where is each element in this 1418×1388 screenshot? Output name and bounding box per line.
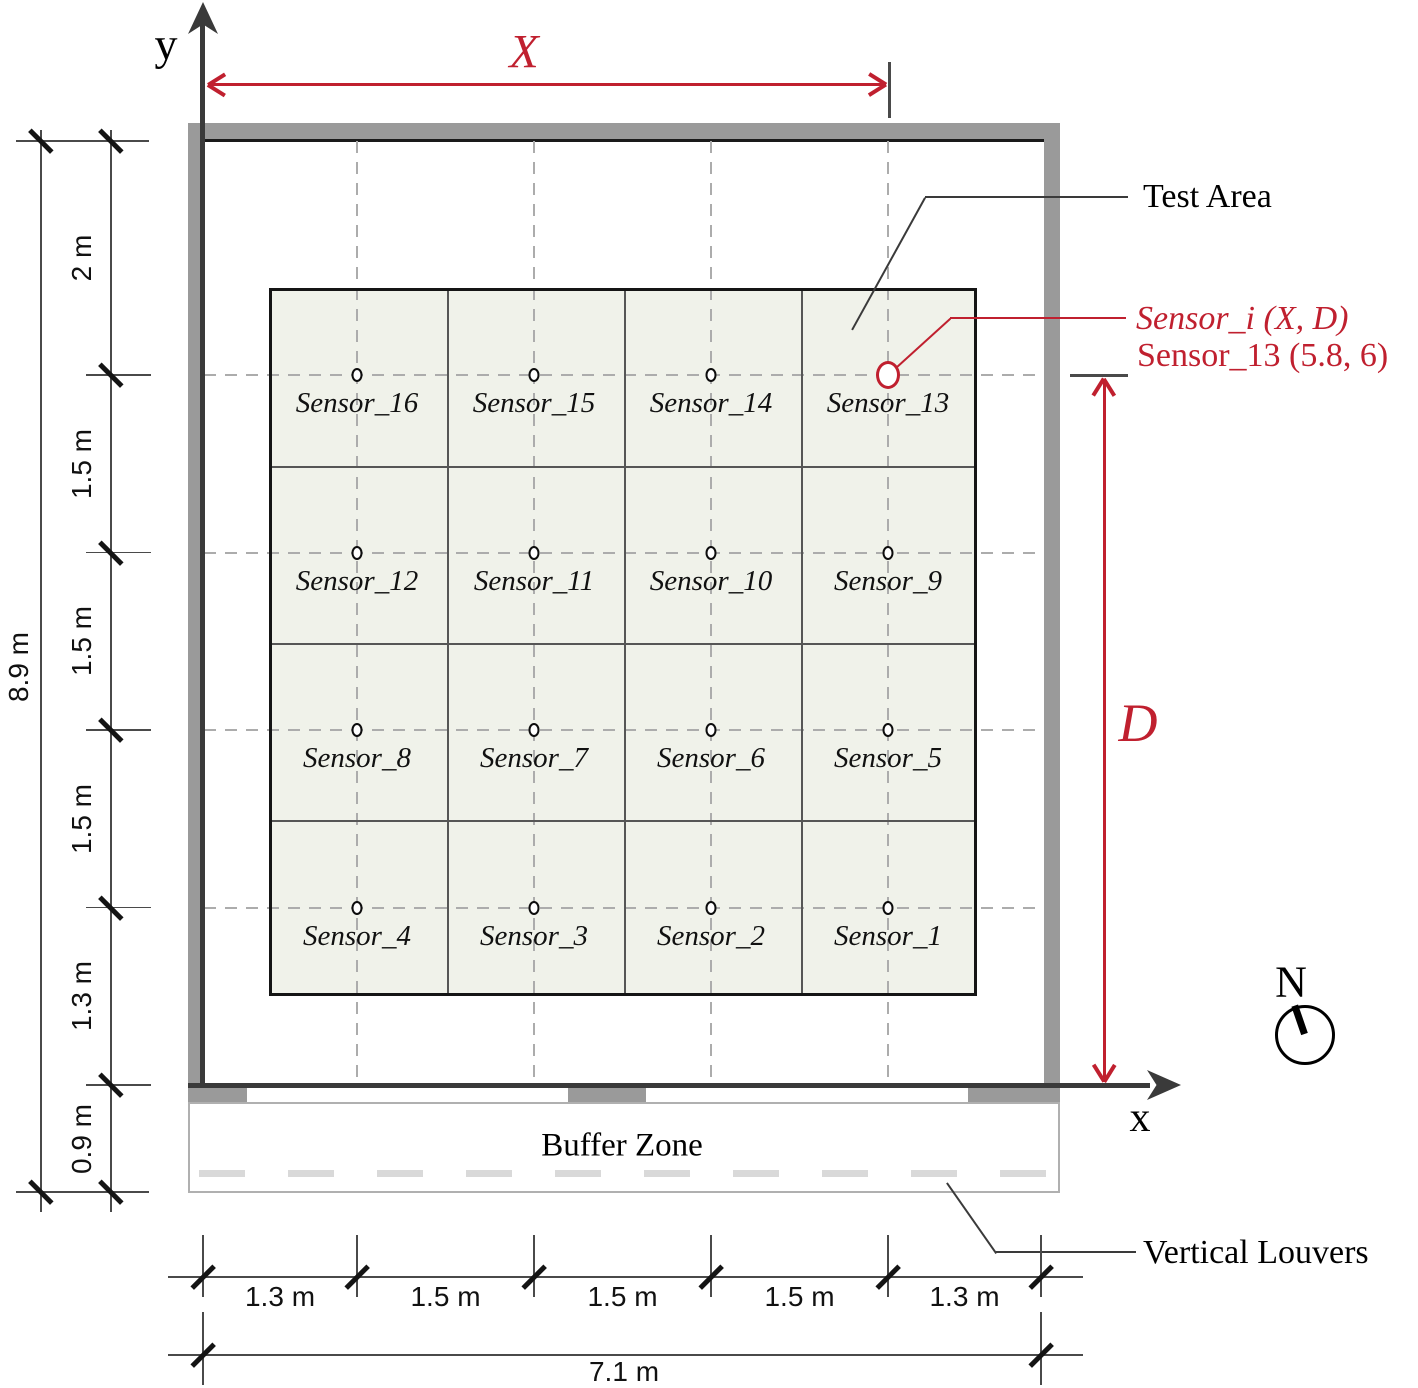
bottom-extension-line [1040,1235,1042,1297]
x-axis-label: x [1130,1094,1151,1142]
y-axis-line [200,24,205,1086]
d-span-top-tick [1070,374,1128,377]
left-extension-line [86,552,151,554]
sensor-label: Sensor_5 [834,742,942,775]
left-extension-line [16,140,149,142]
bottom-dimension-label: 1.5 m [764,1281,834,1313]
left-total-label: 8.9 m [3,632,35,702]
sensor-label: Sensor_1 [834,920,942,953]
left-dimension-label: 1.5 m [66,784,98,854]
bottom-dimension-label: 1.3 m [245,1281,315,1313]
sensor-label: Sensor_13 [827,387,949,420]
wall-bottom-segment-left [188,1087,247,1102]
sensor-label: Sensor_2 [657,920,765,953]
sensor-marker [883,901,894,915]
bottom-extension-line [202,1312,204,1385]
left-dimension-label: 1.5 m [66,429,98,499]
test-area-leader [925,196,1128,198]
bottom-dimension-label: 1.5 m [410,1281,480,1313]
bottom-extension-line [356,1235,358,1297]
wall-bottom-segment-center [568,1087,646,1102]
sensor-marker [883,546,894,560]
sensor-marker [529,901,540,915]
bottom-chain-rail [168,1276,1083,1278]
test-area-label: Test Area [1143,178,1272,216]
vertical-louvers-line [199,1170,1049,1177]
sensor-label: Sensor_15 [473,387,595,420]
bottom-dimension-label: 1.3 m [929,1281,999,1313]
x-span-label: X [509,25,538,80]
sensor-marker [706,901,717,915]
bottom-extension-line [202,1235,204,1297]
left-extension-line [86,374,151,376]
sensor-label: Sensor_9 [834,565,942,598]
test-grid-line [272,820,974,822]
x-span-dimension-line [209,83,885,86]
x-axis-arrow-icon [1147,1070,1181,1100]
north-label: N [1275,957,1307,1008]
left-dimension-label: 0.9 m [66,1103,98,1173]
sensor-marker [883,723,894,737]
test-grid-line [447,291,449,993]
sensor-label: Sensor_11 [474,565,594,598]
sensor-label: Sensor_4 [303,920,411,953]
left-total-rail [40,130,42,1212]
sensor-label: Sensor_7 [480,742,588,775]
bottom-dimension-label: 1.5 m [587,1281,657,1313]
left-extension-line [86,907,151,909]
y-axis-label: y [155,18,178,71]
x-axis-line [188,1083,1150,1088]
left-extension-line [16,1191,149,1193]
left-dimension-label: 2 m [66,235,98,282]
sensor-marker [352,901,363,915]
test-grid-line [272,466,974,468]
x-span-end-tick [888,62,891,118]
left-chain-rail [110,130,112,1212]
north-compass-icon [1275,1005,1335,1065]
sensor-highlight-label: Sensor_13 (5.8, 6) [1137,337,1388,375]
wall-bottom-segment-right [968,1087,1060,1102]
test-grid-line [801,291,803,993]
sensor-label: Sensor_8 [303,742,411,775]
sensor-label: Sensor_6 [657,742,765,775]
sensor-label: Sensor_3 [480,920,588,953]
sensor-label: Sensor_14 [650,387,772,420]
left-extension-line [86,729,151,731]
buffer-zone-label: Buffer Zone [541,1128,703,1165]
sensor-label: Sensor_10 [650,565,772,598]
left-dimension-label: 1.3 m [66,961,98,1031]
bottom-extension-line [533,1235,535,1297]
sensor-marker [529,723,540,737]
left-extension-line [86,1084,151,1086]
sensor-marker [706,368,717,382]
sensor-generic-label: Sensor_i (X, D) [1136,300,1348,338]
vertical-louvers-label: Vertical Louvers [1143,1234,1369,1272]
left-dimension-label: 1.5 m [66,606,98,676]
wall-top [188,123,1060,140]
bottom-extension-line [1040,1312,1042,1385]
bottom-extension-line [887,1235,889,1297]
bottom-total-label: 7.1 m [589,1356,659,1388]
sensor-marker [352,723,363,737]
sensor-marker [529,546,540,560]
sensor-marker [706,723,717,737]
louvers-leader-diagonal [946,1182,997,1253]
sensor-label: Sensor_16 [296,387,418,420]
wall-top-inner-edge [203,139,1044,142]
d-span-dimension-line [1103,380,1106,1082]
sensor-label: Sensor_12 [296,565,418,598]
test-grid-line [624,291,626,993]
sensor-marker [706,546,717,560]
d-span-label: D [1119,692,1158,754]
floor-plan-diagram: Buffer Zone Sensor_16Sensor_15Sensor_14S… [0,0,1418,1388]
louvers-leader [996,1251,1136,1253]
sensor-marker [529,368,540,382]
wall-right [1044,123,1060,1087]
bottom-extension-line [710,1235,712,1297]
test-grid-line [272,643,974,645]
sensor-marker [352,368,363,382]
sensor-callout-leader [950,317,1126,319]
sensor-marker [352,546,363,560]
